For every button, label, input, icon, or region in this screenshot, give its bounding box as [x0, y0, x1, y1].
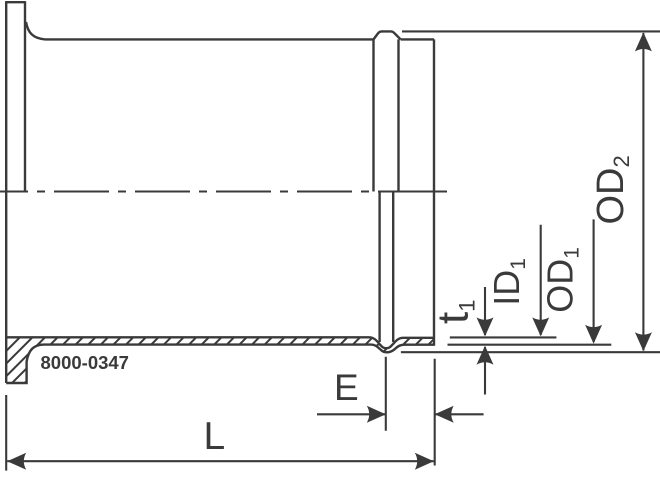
svg-text:E: E — [334, 367, 359, 408]
svg-text:L: L — [204, 415, 226, 458]
svg-text:8000-0347: 8000-0347 — [41, 352, 129, 373]
